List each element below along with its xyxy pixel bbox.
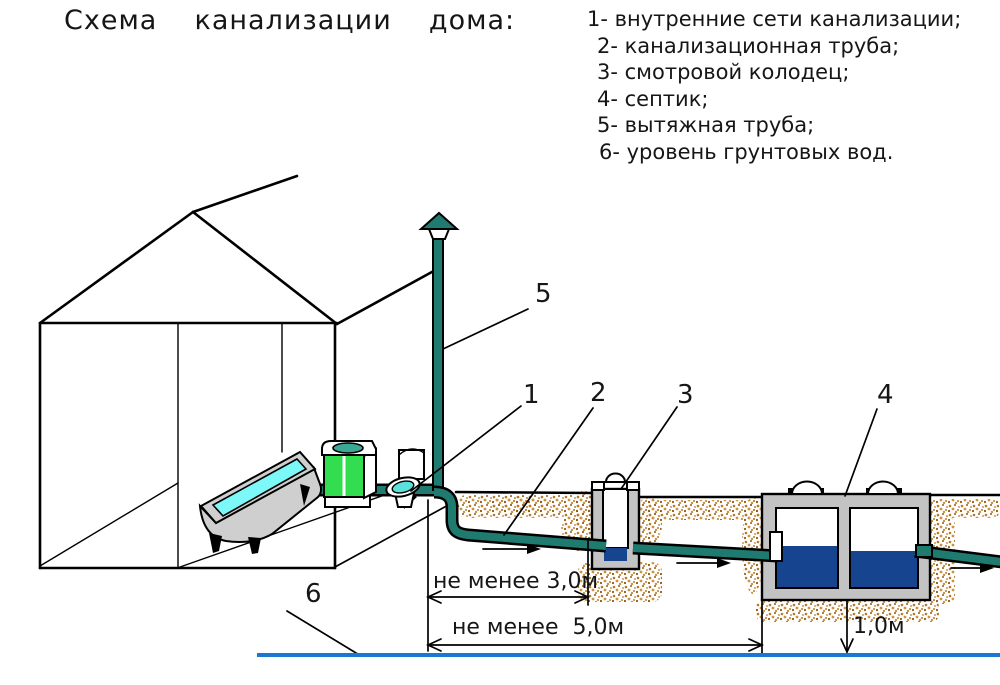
callout-2: 2 [590, 379, 607, 408]
dimension-label-3m: не менее 3,0м [433, 570, 598, 594]
legend-item-5: 5- вытяжная труба; [597, 114, 814, 137]
legend-item-1: 1- внутренние сети канализации; [587, 8, 961, 31]
callout-5: 5 [535, 280, 552, 309]
toilet [384, 449, 424, 509]
groundwater-line [257, 653, 1000, 657]
inspection-well [592, 489, 639, 569]
legend-item-4: 4- септик; [597, 88, 708, 111]
vent-pipe [421, 213, 457, 490]
legend-item-2: 2- канализационная труба; [597, 35, 899, 58]
callout-6: 6 [305, 580, 322, 609]
bathtub [200, 452, 321, 554]
septic-tank [762, 494, 930, 600]
diagram-page: Схема канализации дома: 1- внутренние се… [0, 0, 1000, 685]
callout-3: 3 [677, 381, 694, 410]
legend-item-3: 3- смотровой колодец; [597, 61, 849, 84]
dimension-label-5m: не менее 5,0м [452, 616, 624, 640]
callout-4: 4 [877, 381, 894, 410]
legend-item-6: 6- уровень грунтовых вод. [599, 141, 893, 164]
page-title: Схема канализации дома: [64, 6, 515, 36]
dimension-label-1m: 1,0м [853, 615, 905, 639]
sink-unit [322, 441, 376, 507]
callout-1: 1 [523, 381, 540, 410]
